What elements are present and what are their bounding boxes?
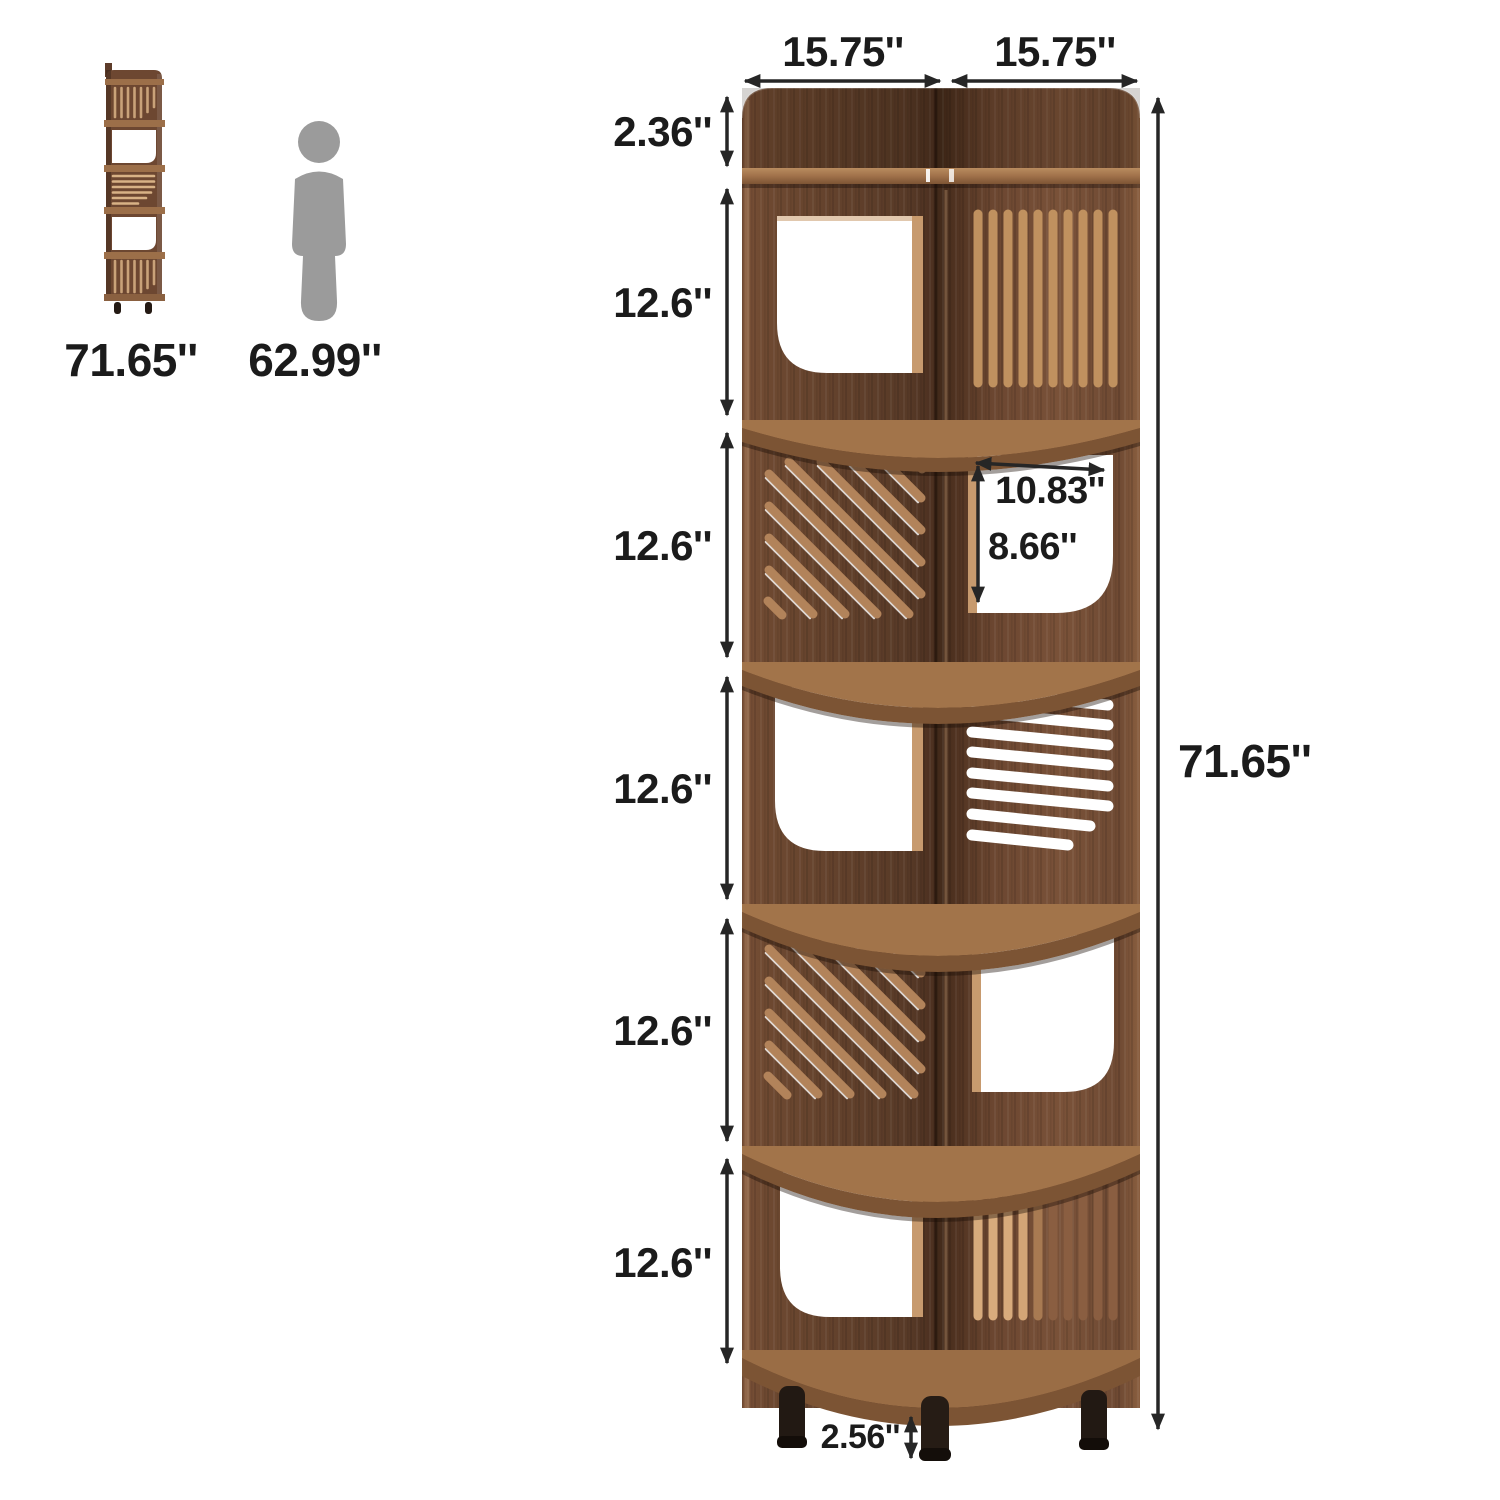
section-height-label-4: 12.6'' [582, 1009, 712, 1053]
section-height-label-2: 12.6'' [582, 524, 712, 568]
cutout-height-label: 8.66'' [988, 528, 1077, 568]
top-width-right-label: 15.75'' [975, 30, 1135, 74]
top-section-height-label: 2.36'' [582, 110, 712, 154]
section-height-label-3: 12.6'' [582, 767, 712, 811]
section-height-label-5: 12.6'' [582, 1241, 712, 1285]
section-height-label-1: 12.6'' [582, 281, 712, 325]
person-height-label: 62.99'' [230, 336, 400, 384]
thumbnail-height-label: 71.65'' [46, 336, 216, 384]
leg-height-label: 2.56'' [760, 1420, 900, 1456]
product-dimension-diagram: 71.65'' 62.99'' 15.75'' 15.75'' 2.36'' 1… [0, 0, 1500, 1500]
top-width-left-label: 15.75'' [763, 30, 923, 74]
cutout-width-label: 10.83'' [982, 472, 1118, 512]
overall-height-label: 71.65'' [1178, 737, 1312, 785]
dimension-arrow-cutout-width [976, 463, 1104, 470]
